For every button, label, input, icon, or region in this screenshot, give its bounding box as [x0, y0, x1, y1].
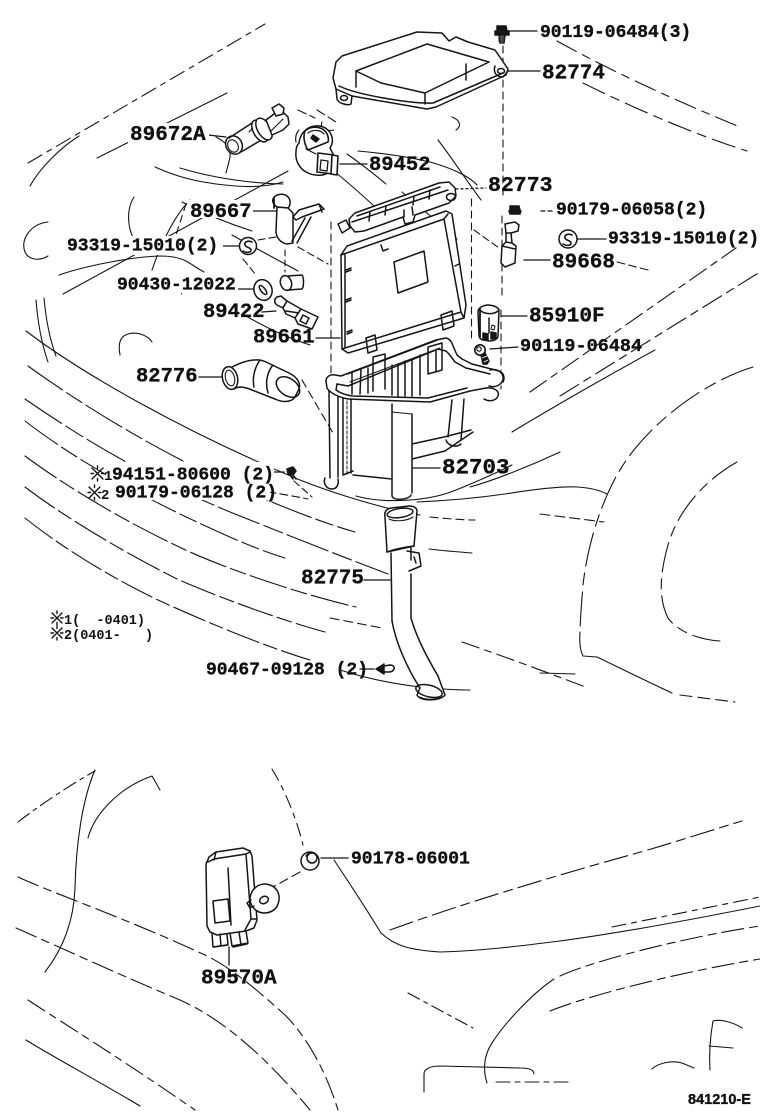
svg-text:89668: 89668 — [552, 252, 615, 275]
svg-text:90179-06058(2): 90179-06058(2) — [556, 201, 707, 221]
svg-text:89661: 89661 — [253, 327, 315, 350]
svg-text:82775: 82775 — [301, 568, 364, 591]
svg-text:2: 2 — [101, 488, 109, 504]
svg-text:89570A: 89570A — [201, 968, 277, 991]
svg-text:82773: 82773 — [488, 174, 553, 198]
svg-text:90119-06484: 90119-06484 — [520, 336, 642, 357]
svg-text:82703: 82703 — [442, 455, 510, 481]
svg-text:90179-06128 (2): 90179-06128 (2) — [115, 484, 277, 504]
svg-text:93319-15010(2): 93319-15010(2) — [608, 230, 759, 250]
svg-text:90467-09128 (2): 90467-09128 (2) — [206, 661, 368, 681]
svg-text:2(0401- ): 2(0401- ) — [64, 629, 153, 644]
svg-text:90119-06484(3): 90119-06484(3) — [540, 23, 691, 43]
svg-text:1( -0401): 1( -0401) — [64, 614, 145, 629]
svg-text:89452: 89452 — [369, 154, 431, 177]
svg-text:89422: 89422 — [203, 301, 265, 324]
svg-text:89667: 89667 — [190, 201, 252, 224]
svg-text:94151-80600 (2): 94151-80600 (2) — [112, 466, 274, 486]
svg-text:82774: 82774 — [542, 63, 605, 86]
svg-text:93319-15010(2): 93319-15010(2) — [67, 237, 218, 257]
svg-text:85910F: 85910F — [529, 306, 605, 329]
svg-text:90178-06001: 90178-06001 — [351, 850, 470, 870]
svg-text:841210-E: 841210-E — [688, 1092, 751, 1108]
svg-text:1: 1 — [104, 469, 112, 485]
svg-text:90430-12022: 90430-12022 — [117, 276, 236, 296]
svg-text:82776: 82776 — [136, 366, 198, 389]
svg-text:89672A: 89672A — [130, 124, 206, 147]
